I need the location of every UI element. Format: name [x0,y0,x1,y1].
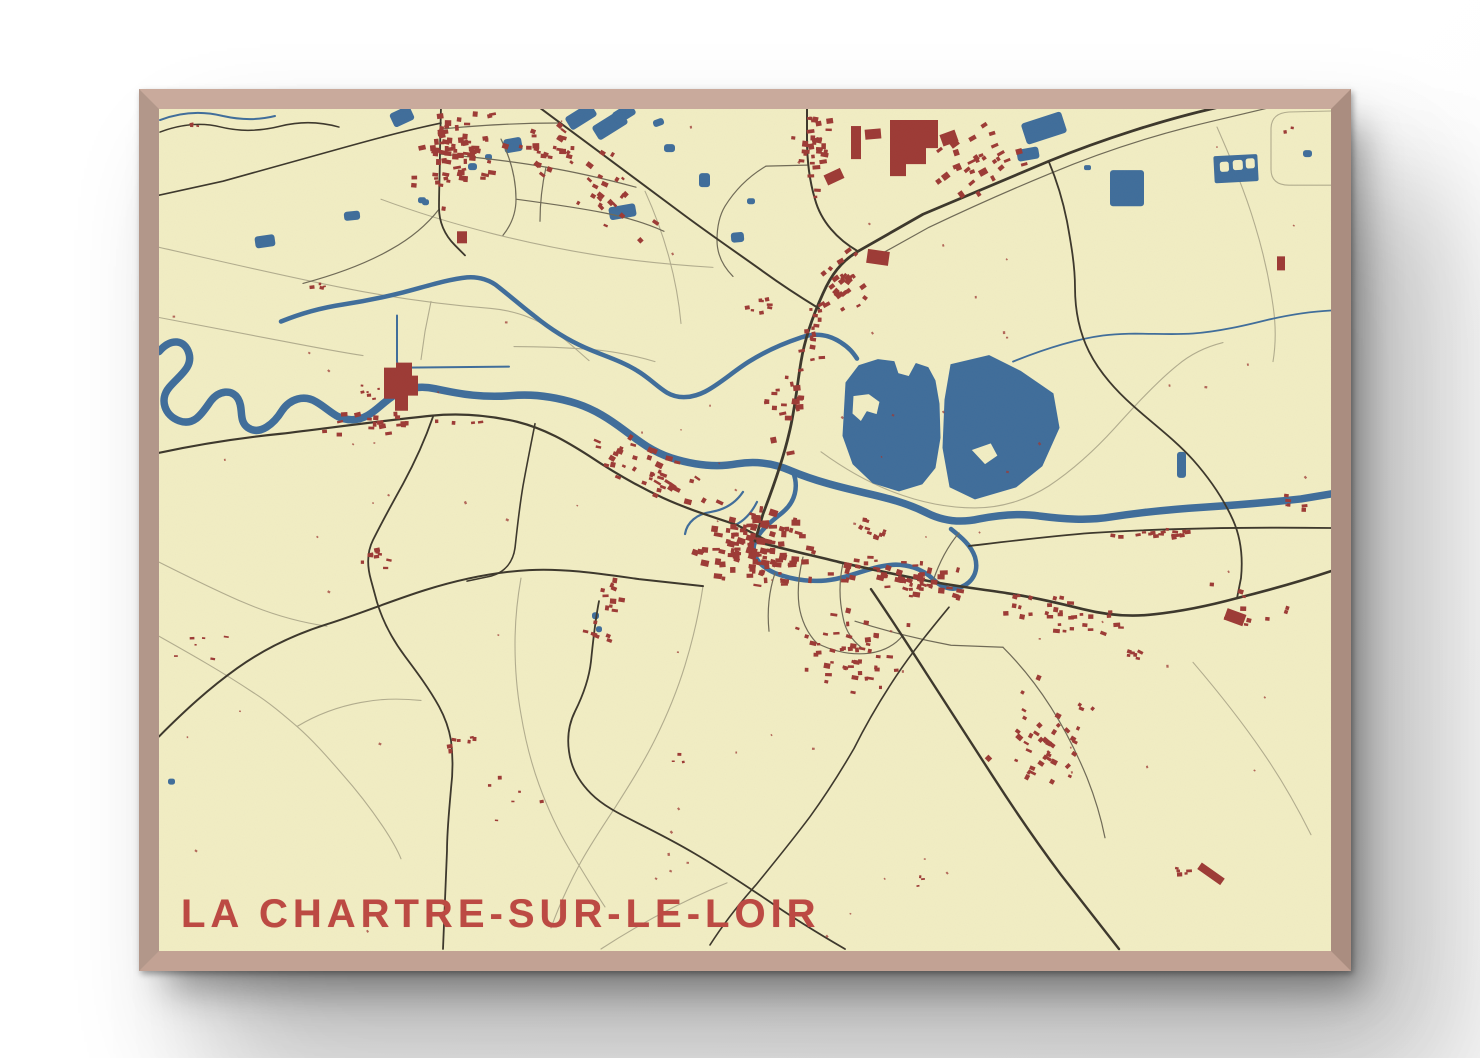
poster-frame: LA CHARTRE-SUR-LE-LOIR [139,89,1351,971]
map-poster-paper: LA CHARTRE-SUR-LE-LOIR [159,109,1331,951]
city-map-graphic [159,109,1331,951]
paper-grain-texture [159,109,1331,951]
poster-title: LA CHARTRE-SUR-LE-LOIR [181,892,821,937]
